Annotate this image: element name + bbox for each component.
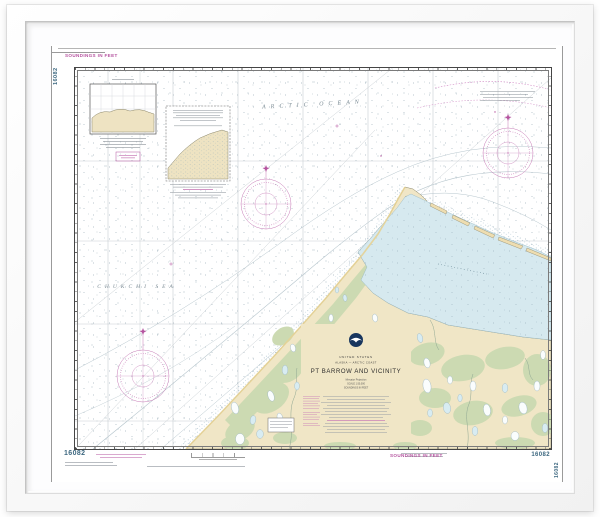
- edition-note-line: [65, 465, 117, 466]
- title-region: ALASKA — ARCTIC COAST: [335, 361, 377, 365]
- chart-title: PT BARROW AND VICINITY: [311, 369, 401, 375]
- title-country: UNITED STATES: [339, 355, 373, 359]
- border-ticks-left: [75, 68, 77, 449]
- noaa-logo-icon: [349, 333, 363, 347]
- title-scale: SCALE 1:50,000: [347, 383, 365, 386]
- chart-paper: SOUNDINGS IN FEET 16082 16082 SOUNDINGS …: [51, 45, 563, 482]
- sea-label: CHUKCHI SEA: [97, 284, 177, 290]
- small-table-box: [268, 418, 294, 432]
- margin-rule-line: [147, 466, 245, 467]
- chart-number-left-vertical: 16082: [53, 67, 59, 85]
- margin-scale-bar-line: [199, 459, 237, 460]
- border-ticks-bottom: [75, 447, 551, 449]
- soundings-note-top-left: SOUNDINGS IN FEET: [65, 53, 118, 58]
- title-projection: Mercator Projection: [346, 379, 367, 382]
- magenta-note-line: [100, 457, 142, 458]
- border-ticks-right: [549, 68, 551, 449]
- inset-map-continuation: [166, 106, 230, 198]
- title-magenta-line: [327, 420, 385, 421]
- chart-number-right-vertical: 16082: [554, 462, 560, 478]
- chart-neatline: ARCTIC OCEAN CHUKCHI SEA UNITED STATES A…: [74, 67, 552, 450]
- soundings-note-bottom-right: SOUNDINGS IN FEET: [390, 453, 443, 458]
- picture-frame: SOUNDINGS IN FEET 16082 16082 SOUNDINGS …: [7, 5, 593, 511]
- chart-number-bottom-left: 16082: [64, 450, 85, 457]
- framed-chart-photo: SOUNDINGS IN FEET 16082 16082 SOUNDINGS …: [0, 0, 600, 517]
- border-ticks-top: [75, 68, 551, 70]
- nautical-chart-map: ARCTIC OCEAN CHUKCHI SEA UNITED STATES A…: [75, 68, 551, 449]
- margin-scale-bar: [191, 453, 245, 458]
- chart-number-bottom-right: 16082: [531, 452, 550, 458]
- title-datum: SOUNDINGS IN FEET: [344, 387, 369, 390]
- margin-scale-bracket: [51, 45, 105, 53]
- edition-note-line: [65, 462, 113, 463]
- magenta-note-line: [96, 454, 146, 455]
